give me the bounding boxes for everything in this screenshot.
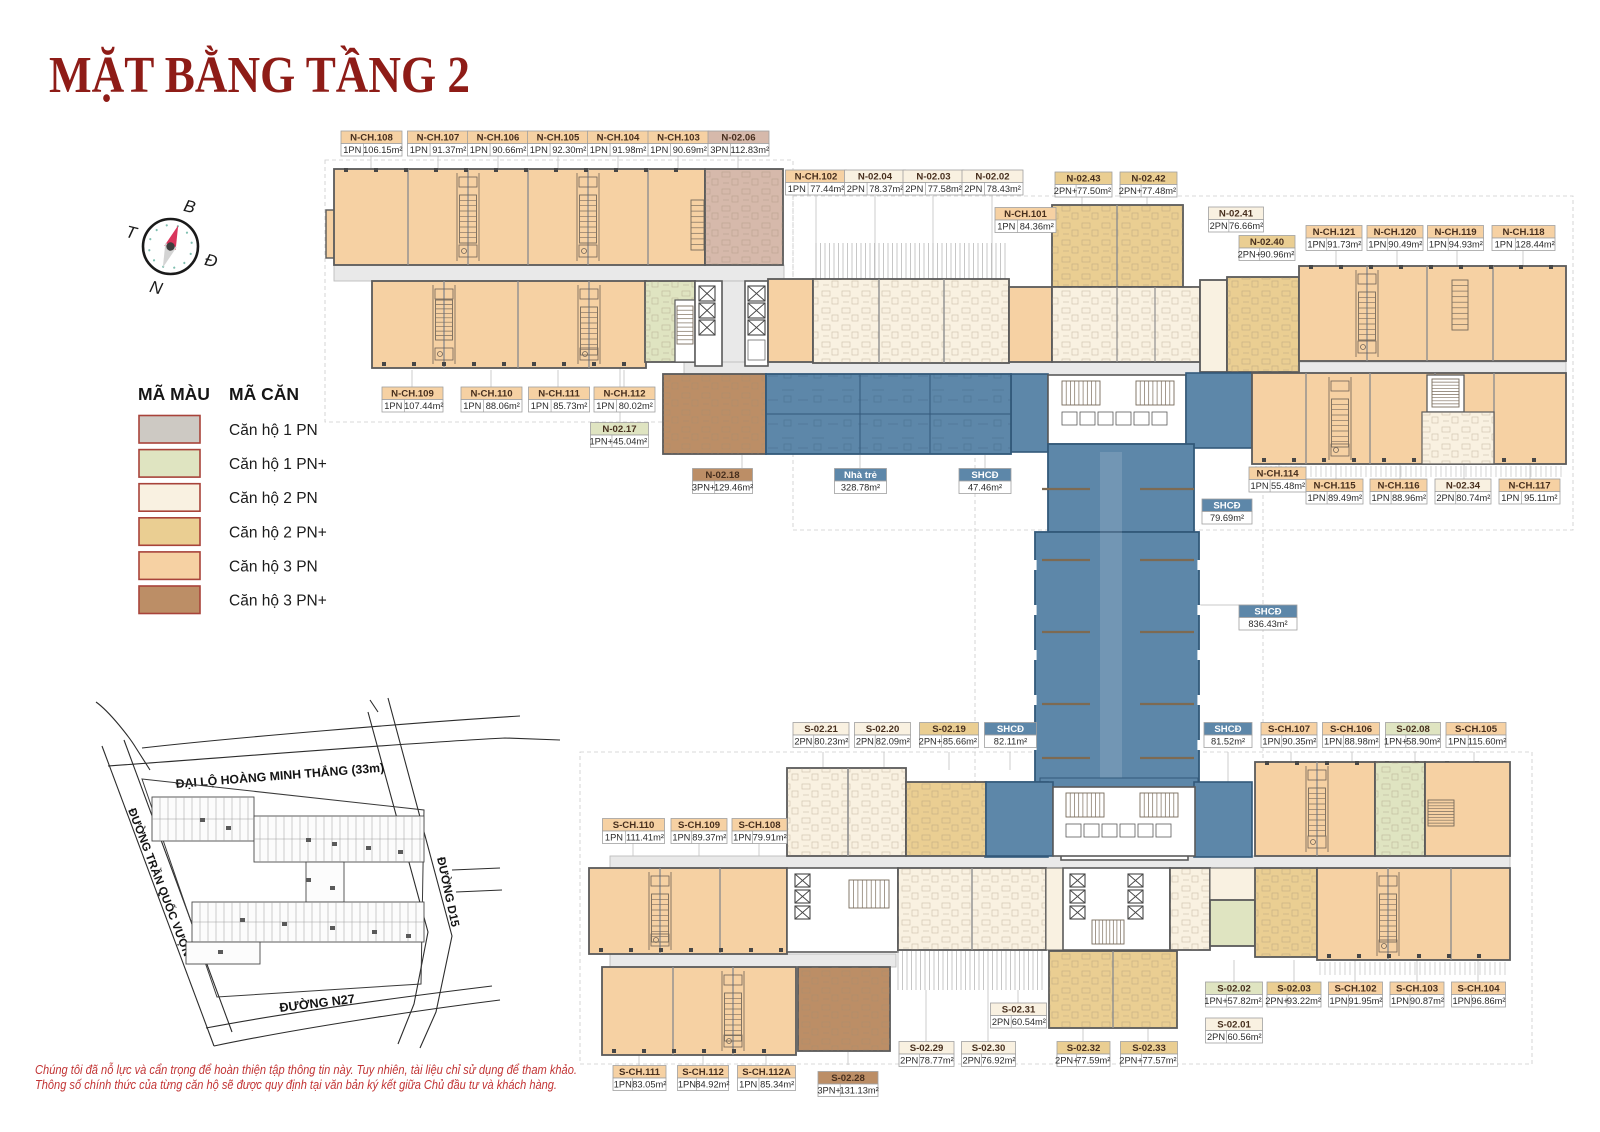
svg-text:S-02.20: S-02.20 bbox=[866, 724, 900, 735]
svg-text:111.41m²: 111.41m² bbox=[626, 833, 664, 843]
svg-text:3PN+: 3PN+ bbox=[692, 483, 716, 493]
svg-text:1PN: 1PN bbox=[678, 1080, 696, 1090]
svg-text:1PN: 1PN bbox=[1452, 996, 1470, 1006]
svg-text:2PN+: 2PN+ bbox=[919, 737, 943, 747]
svg-text:S-CH.107: S-CH.107 bbox=[1268, 724, 1310, 735]
svg-text:60.56m²: 60.56m² bbox=[1227, 1032, 1261, 1042]
svg-text:92.30m²: 92.30m² bbox=[552, 145, 586, 155]
svg-text:83.05m²: 83.05m² bbox=[632, 1080, 666, 1090]
svg-text:1PN: 1PN bbox=[1324, 737, 1342, 747]
svg-text:N-CH.105: N-CH.105 bbox=[537, 133, 580, 144]
svg-text:88.96m²: 88.96m² bbox=[1392, 493, 1426, 503]
svg-text:76.66m²: 76.66m² bbox=[1229, 221, 1263, 231]
svg-text:1PN: 1PN bbox=[1371, 493, 1389, 503]
svg-text:Thông số chính thức của từng c: Thông số chính thức của từng căn hộ sẽ đ… bbox=[35, 1077, 557, 1092]
svg-text:1PN: 1PN bbox=[343, 145, 361, 155]
svg-text:85.66m²: 85.66m² bbox=[943, 737, 977, 747]
svg-text:79.91m²: 79.91m² bbox=[753, 833, 787, 843]
svg-text:3PN+: 3PN+ bbox=[817, 1086, 841, 1096]
svg-text:S-CH.112: S-CH.112 bbox=[682, 1067, 724, 1078]
svg-text:328.78m²: 328.78m² bbox=[841, 483, 880, 493]
svg-text:2PN: 2PN bbox=[794, 737, 812, 747]
svg-text:N-CH.101: N-CH.101 bbox=[1004, 209, 1047, 220]
svg-text:84.36m²: 84.36m² bbox=[1020, 222, 1054, 232]
svg-text:N-CH.108: N-CH.108 bbox=[350, 133, 393, 144]
svg-text:115.60m²: 115.60m² bbox=[1468, 737, 1507, 747]
svg-text:82.09m²: 82.09m² bbox=[876, 737, 910, 747]
svg-text:91.37m²: 91.37m² bbox=[432, 145, 466, 155]
svg-text:91.73m²: 91.73m² bbox=[1327, 240, 1361, 250]
svg-text:N-02.17: N-02.17 bbox=[602, 424, 636, 435]
svg-text:N-CH.102: N-CH.102 bbox=[795, 172, 838, 183]
svg-text:1PN: 1PN bbox=[410, 145, 428, 155]
svg-text:85.73m²: 85.73m² bbox=[553, 401, 587, 411]
svg-text:91.98m²: 91.98m² bbox=[612, 145, 646, 155]
svg-text:N-CH.117: N-CH.117 bbox=[1508, 481, 1550, 492]
svg-text:60.54m²: 60.54m² bbox=[1012, 1017, 1046, 1027]
svg-text:N-02.06: N-02.06 bbox=[721, 133, 755, 144]
svg-text:N-CH.107: N-CH.107 bbox=[417, 133, 460, 144]
svg-text:1PN: 1PN bbox=[1429, 240, 1447, 250]
svg-text:S-CH.102: S-CH.102 bbox=[1334, 984, 1376, 995]
svg-text:N-CH.120: N-CH.120 bbox=[1374, 227, 1417, 238]
svg-text:N-02.43: N-02.43 bbox=[1066, 174, 1100, 185]
svg-text:Căn hộ 2 PN: Căn hộ 2 PN bbox=[229, 490, 318, 507]
svg-text:N-02.40: N-02.40 bbox=[1250, 237, 1284, 248]
svg-text:89.37m²: 89.37m² bbox=[692, 833, 726, 843]
svg-text:N-02.02: N-02.02 bbox=[975, 172, 1009, 183]
svg-text:2PN+: 2PN+ bbox=[1054, 186, 1078, 196]
svg-text:N-CH.118: N-CH.118 bbox=[1502, 227, 1545, 238]
svg-text:1PN: 1PN bbox=[596, 401, 614, 411]
svg-text:1PN: 1PN bbox=[1501, 493, 1519, 503]
svg-text:106.15m²: 106.15m² bbox=[363, 145, 402, 155]
svg-text:88.98m²: 88.98m² bbox=[1344, 737, 1378, 747]
svg-text:1PN: 1PN bbox=[739, 1080, 757, 1090]
svg-text:77.59m²: 77.59m² bbox=[1076, 1056, 1110, 1066]
svg-text:131.13m²: 131.13m² bbox=[839, 1086, 878, 1096]
svg-text:85.34m²: 85.34m² bbox=[760, 1080, 794, 1090]
svg-text:N-CH.114: N-CH.114 bbox=[1256, 469, 1299, 480]
svg-text:2PN: 2PN bbox=[992, 1017, 1010, 1027]
svg-text:N-CH.121: N-CH.121 bbox=[1313, 227, 1356, 238]
svg-text:2PN: 2PN bbox=[962, 1056, 980, 1066]
svg-text:2PN: 2PN bbox=[905, 184, 923, 194]
svg-text:78.43m²: 78.43m² bbox=[987, 184, 1021, 194]
svg-text:N-02.42: N-02.42 bbox=[1131, 174, 1165, 185]
svg-text:107.44m²: 107.44m² bbox=[404, 401, 443, 411]
svg-text:82.11m²: 82.11m² bbox=[994, 737, 1027, 747]
svg-text:1PN: 1PN bbox=[1391, 996, 1409, 1006]
svg-text:S-02.03: S-02.03 bbox=[1277, 984, 1311, 995]
svg-text:2PN: 2PN bbox=[856, 737, 874, 747]
svg-text:N-CH.119: N-CH.119 bbox=[1434, 227, 1476, 238]
svg-text:Căn hộ 3 PN+: Căn hộ 3 PN+ bbox=[229, 593, 327, 610]
svg-text:S-02.01: S-02.01 bbox=[1217, 1020, 1251, 1031]
svg-text:3PN: 3PN bbox=[710, 145, 728, 155]
svg-text:1PN: 1PN bbox=[1262, 737, 1280, 747]
svg-text:N-02.34: N-02.34 bbox=[1446, 481, 1481, 492]
svg-text:81.52m²: 81.52m² bbox=[1211, 737, 1245, 747]
svg-text:1PN: 1PN bbox=[1307, 493, 1325, 503]
svg-text:88.06m²: 88.06m² bbox=[486, 401, 520, 411]
svg-text:2PN+: 2PN+ bbox=[1119, 1056, 1143, 1066]
svg-text:N-CH.110: N-CH.110 bbox=[470, 389, 512, 400]
svg-text:1PN+: 1PN+ bbox=[1204, 996, 1228, 1006]
svg-text:77.58m²: 77.58m² bbox=[928, 184, 962, 194]
svg-text:84.92m²: 84.92m² bbox=[695, 1080, 729, 1090]
svg-text:Chúng tôi đã nỗ lực và cẩn trọ: Chúng tôi đã nỗ lực và cẩn trọng để hoàn… bbox=[35, 1062, 577, 1077]
svg-text:1PN: 1PN bbox=[470, 145, 488, 155]
svg-text:1PN: 1PN bbox=[1307, 240, 1325, 250]
svg-text:Căn hộ 1 PN: Căn hộ 1 PN bbox=[229, 422, 318, 439]
svg-text:129.46m²: 129.46m² bbox=[714, 483, 753, 493]
svg-text:1PN: 1PN bbox=[590, 145, 608, 155]
svg-text:S-CH.104: S-CH.104 bbox=[1457, 984, 1500, 995]
svg-text:2PN: 2PN bbox=[964, 184, 982, 194]
svg-text:1PN: 1PN bbox=[1329, 996, 1347, 1006]
svg-text:90.96m²: 90.96m² bbox=[1260, 250, 1294, 260]
svg-text:77.48m²: 77.48m² bbox=[1142, 186, 1176, 196]
svg-text:N-02.04: N-02.04 bbox=[858, 172, 893, 183]
svg-text:2PN+: 2PN+ bbox=[1265, 996, 1289, 1006]
svg-text:1PN: 1PN bbox=[463, 401, 481, 411]
svg-text:1PN: 1PN bbox=[788, 184, 806, 194]
svg-text:Căn hộ 2 PN+: Căn hộ 2 PN+ bbox=[229, 524, 327, 541]
svg-text:128.44m²: 128.44m² bbox=[1516, 240, 1555, 250]
svg-text:N-CH.104: N-CH.104 bbox=[597, 133, 640, 144]
svg-text:N-CH.112: N-CH.112 bbox=[603, 389, 645, 400]
svg-text:1PN: 1PN bbox=[1250, 481, 1268, 491]
svg-text:S-CH.112A: S-CH.112A bbox=[742, 1067, 791, 1078]
svg-text:S-02.29: S-02.29 bbox=[910, 1043, 944, 1054]
svg-text:79.69m²: 79.69m² bbox=[1210, 513, 1244, 523]
svg-text:SHCĐ: SHCĐ bbox=[971, 470, 998, 481]
svg-text:78.37m²: 78.37m² bbox=[869, 184, 903, 194]
svg-text:N-CH.109: N-CH.109 bbox=[391, 389, 434, 400]
svg-text:2PN+: 2PN+ bbox=[1238, 250, 1262, 260]
svg-text:1PN: 1PN bbox=[605, 833, 623, 843]
svg-text:91.95m²: 91.95m² bbox=[1348, 996, 1382, 1006]
svg-text:S-02.28: S-02.28 bbox=[831, 1073, 865, 1084]
svg-text:S-CH.111: S-CH.111 bbox=[619, 1067, 661, 1078]
svg-text:77.44m²: 77.44m² bbox=[810, 184, 844, 194]
svg-text:Căn hộ 3 PN: Căn hộ 3 PN bbox=[229, 558, 318, 575]
svg-text:S-CH.108: S-CH.108 bbox=[738, 820, 781, 831]
svg-text:N-02.18: N-02.18 bbox=[705, 470, 740, 481]
svg-text:1PN: 1PN bbox=[1495, 240, 1513, 250]
svg-text:SHCĐ: SHCĐ bbox=[1254, 607, 1281, 618]
svg-text:78.77m²: 78.77m² bbox=[920, 1056, 954, 1066]
svg-text:90.66m²: 90.66m² bbox=[492, 145, 526, 155]
svg-text:95.11m²: 95.11m² bbox=[1524, 493, 1557, 503]
svg-text:S-CH.106: S-CH.106 bbox=[1330, 724, 1372, 735]
svg-text:1PN: 1PN bbox=[1368, 240, 1386, 250]
svg-text:58.90m²: 58.90m² bbox=[1406, 737, 1440, 747]
svg-text:N-CH.116: N-CH.116 bbox=[1377, 481, 1419, 492]
svg-text:S-02.33: S-02.33 bbox=[1132, 1043, 1166, 1054]
svg-text:112.83m²: 112.83m² bbox=[730, 145, 769, 155]
svg-text:N-02.03: N-02.03 bbox=[916, 172, 950, 183]
svg-text:S-02.32: S-02.32 bbox=[1067, 1043, 1101, 1054]
svg-text:2PN: 2PN bbox=[1436, 493, 1454, 503]
svg-text:1PN+: 1PN+ bbox=[1384, 737, 1408, 747]
svg-text:1PN: 1PN bbox=[531, 401, 549, 411]
svg-text:MẶT BẰNG TẦNG 2: MẶT BẰNG TẦNG 2 bbox=[49, 44, 470, 104]
svg-text:80.74m²: 80.74m² bbox=[1456, 493, 1490, 503]
svg-text:S-02.30: S-02.30 bbox=[972, 1043, 1006, 1054]
svg-text:2PN: 2PN bbox=[900, 1056, 918, 1066]
svg-text:SHCĐ: SHCĐ bbox=[1213, 501, 1240, 512]
svg-text:1PN: 1PN bbox=[614, 1080, 632, 1090]
svg-text:57.82m²: 57.82m² bbox=[1227, 996, 1261, 1006]
svg-text:S-CH.105: S-CH.105 bbox=[1455, 724, 1498, 735]
svg-text:2PN: 2PN bbox=[847, 184, 865, 194]
svg-text:S-02.31: S-02.31 bbox=[1002, 1005, 1036, 1016]
svg-text:2PN+: 2PN+ bbox=[1119, 186, 1143, 196]
svg-text:1PN: 1PN bbox=[650, 145, 668, 155]
svg-text:N-CH.106: N-CH.106 bbox=[477, 133, 520, 144]
svg-text:N-CH.111: N-CH.111 bbox=[538, 389, 580, 400]
svg-text:77.50m²: 77.50m² bbox=[1077, 186, 1111, 196]
svg-text:94.93m²: 94.93m² bbox=[1449, 240, 1483, 250]
svg-text:S-CH.103: S-CH.103 bbox=[1396, 984, 1438, 995]
svg-text:SHCĐ: SHCĐ bbox=[997, 724, 1024, 735]
svg-text:90.87m²: 90.87m² bbox=[1410, 996, 1444, 1006]
svg-text:N-CH.115: N-CH.115 bbox=[1313, 481, 1356, 492]
svg-text:45.04m²: 45.04m² bbox=[613, 437, 647, 447]
svg-text:77.57m²: 77.57m² bbox=[1142, 1056, 1176, 1066]
svg-text:80.23m²: 80.23m² bbox=[814, 737, 848, 747]
svg-text:1PN: 1PN bbox=[384, 401, 402, 411]
svg-text:2PN: 2PN bbox=[1207, 1032, 1225, 1042]
svg-text:1PN+: 1PN+ bbox=[589, 437, 613, 447]
svg-text:89.49m²: 89.49m² bbox=[1328, 493, 1362, 503]
svg-text:N-CH.103: N-CH.103 bbox=[657, 133, 700, 144]
svg-text:90.35m²: 90.35m² bbox=[1282, 737, 1316, 747]
svg-text:1PN: 1PN bbox=[1448, 737, 1466, 747]
svg-text:MÃ CĂN: MÃ CĂN bbox=[229, 383, 299, 404]
svg-text:96.86m²: 96.86m² bbox=[1471, 996, 1505, 1006]
svg-text:93.22m²: 93.22m² bbox=[1287, 996, 1321, 1006]
svg-text:S-02.08: S-02.08 bbox=[1396, 724, 1430, 735]
svg-text:55.48m²: 55.48m² bbox=[1271, 481, 1305, 491]
svg-text:S-02.21: S-02.21 bbox=[804, 724, 838, 735]
svg-text:SHCĐ: SHCĐ bbox=[1214, 724, 1241, 735]
svg-text:90.49m²: 90.49m² bbox=[1388, 240, 1422, 250]
svg-text:47.46m²: 47.46m² bbox=[968, 483, 1002, 493]
svg-text:2PN: 2PN bbox=[1210, 221, 1228, 231]
svg-text:S-CH.109: S-CH.109 bbox=[678, 820, 720, 831]
svg-text:Nhà trẻ: Nhà trẻ bbox=[844, 470, 877, 481]
svg-text:76.92m²: 76.92m² bbox=[981, 1056, 1015, 1066]
svg-text:S-02.02: S-02.02 bbox=[1217, 984, 1251, 995]
svg-text:1PN: 1PN bbox=[997, 222, 1015, 232]
svg-text:1PN: 1PN bbox=[672, 833, 690, 843]
svg-text:N-02.41: N-02.41 bbox=[1219, 209, 1254, 220]
svg-text:1PN: 1PN bbox=[733, 833, 751, 843]
svg-text:836.43m²: 836.43m² bbox=[1248, 619, 1287, 629]
svg-text:90.69m²: 90.69m² bbox=[673, 145, 707, 155]
svg-text:80.02m²: 80.02m² bbox=[619, 401, 653, 411]
svg-text:S-02.19: S-02.19 bbox=[932, 724, 966, 735]
svg-text:1PN: 1PN bbox=[530, 145, 548, 155]
svg-text:MÃ MÀU: MÃ MÀU bbox=[138, 383, 210, 404]
svg-text:S-CH.110: S-CH.110 bbox=[613, 820, 655, 831]
svg-text:2PN+: 2PN+ bbox=[1055, 1056, 1079, 1066]
svg-text:Căn hộ 1 PN+: Căn hộ 1 PN+ bbox=[229, 456, 327, 473]
